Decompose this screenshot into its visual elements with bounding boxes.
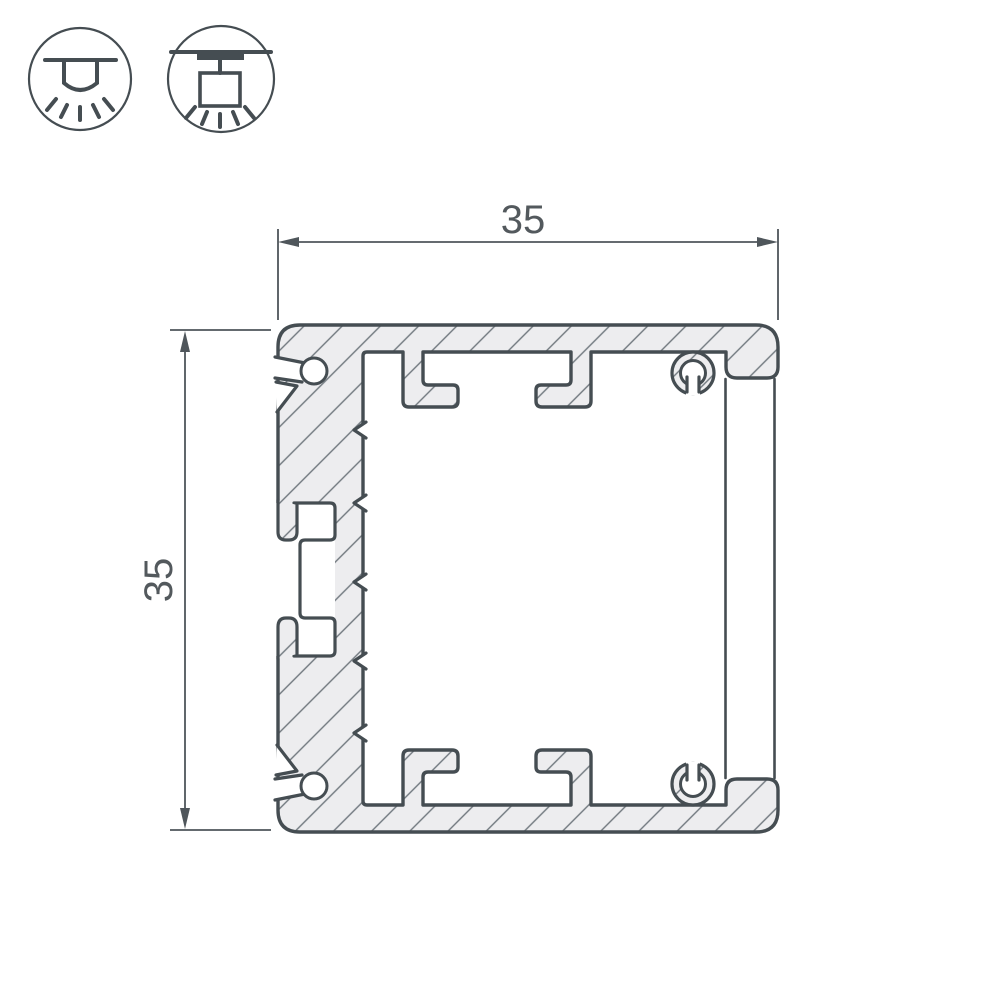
arrow-left-icon (278, 237, 299, 247)
aluminum-body (278, 325, 778, 832)
width-dimension: 35 (278, 198, 778, 320)
side-mounting-recess (274, 500, 335, 659)
profile-cross-section (274, 325, 778, 832)
arrow-right-icon (757, 237, 778, 247)
height-dimension-label: 35 (137, 558, 181, 603)
mount-type-icons (29, 26, 274, 132)
screw-boss-top (672, 352, 714, 396)
arrow-down-icon (180, 808, 190, 829)
recess-lip-top (278, 500, 297, 540)
height-dimension: 35 (137, 330, 271, 830)
surface-mount-icon (168, 26, 274, 132)
recessed-mount-icon (29, 28, 131, 130)
screw-boss-bottom (672, 762, 714, 806)
width-dimension-label: 35 (501, 198, 546, 242)
profile-drawing-svg: 35 35 (0, 0, 1000, 1000)
recess-lip-bottom (278, 618, 297, 659)
technical-drawing-page: 35 35 (0, 0, 1000, 1000)
arrow-up-icon (180, 331, 190, 352)
diffuser-screen (726, 379, 775, 778)
